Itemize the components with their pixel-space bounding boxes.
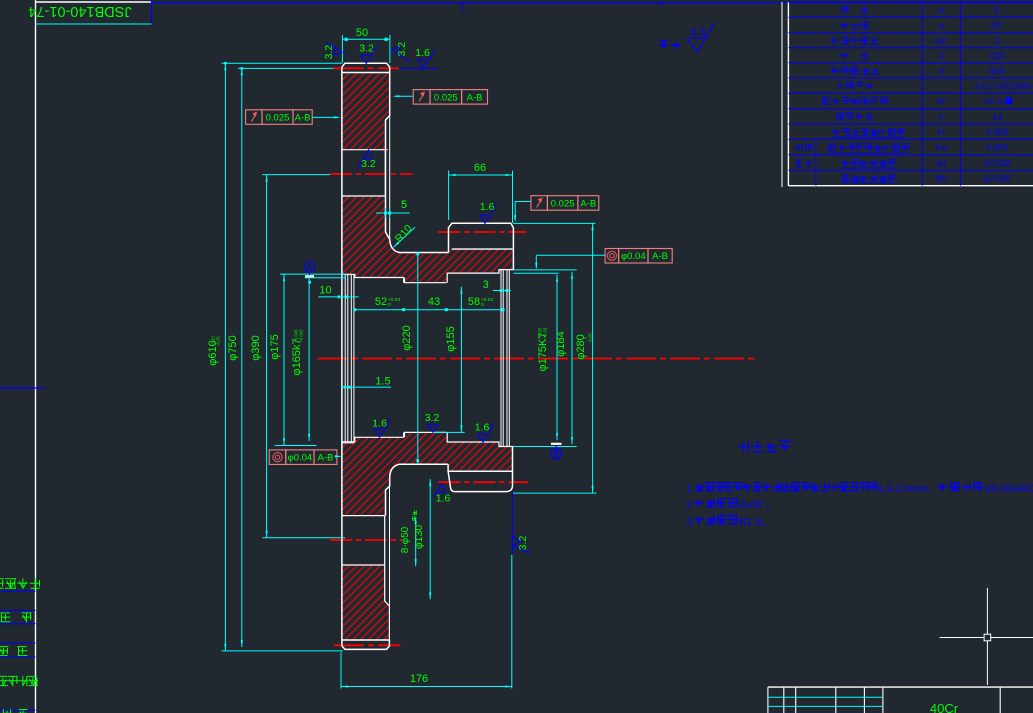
svg-text:48-55HRC: 48-55HRC: [985, 483, 1033, 495]
svg-text:3.2: 3.2: [517, 536, 529, 551]
svg-text:R1.5。: R1.5。: [739, 516, 772, 528]
svg-text:α: α: [939, 20, 944, 30]
svg-text:A-B: A-B: [652, 251, 668, 262]
svg-text:1.6: 1.6: [436, 493, 451, 505]
svg-text:1.5-2.0mm,: 1.5-2.0mm,: [878, 483, 931, 495]
svg-text:1.6: 1.6: [372, 418, 387, 430]
svg-text:-0.05: -0.05: [588, 333, 593, 343]
svg-text:0.086: 0.086: [986, 127, 1009, 137]
svg-text:237.02: 237.02: [984, 97, 1007, 106]
svg-text:A-B: A-B: [580, 198, 596, 209]
svg-text:φ0.04: φ0.04: [621, 251, 646, 262]
svg-text:0.050: 0.050: [986, 143, 1009, 153]
svg-text:1.6: 1.6: [415, 47, 430, 59]
svg-text:14: 14: [992, 112, 1002, 122]
svg-text:φ130: φ130: [413, 525, 425, 549]
svg-text:A-B: A-B: [318, 453, 334, 464]
svg-text:1.5: 1.5: [375, 376, 390, 388]
svg-text:fpb: fpb: [935, 173, 947, 183]
svg-text:3.2: 3.2: [425, 412, 440, 424]
svg-text:φ165k7: φ165k7: [291, 338, 303, 375]
svg-text:d: d: [939, 66, 944, 76]
svg-text:φ175: φ175: [269, 334, 281, 360]
svg-text:±0.030: ±0.030: [983, 174, 1010, 184]
svg-text:5: 5: [401, 199, 407, 211]
svg-text:A: A: [307, 263, 313, 272]
svg-text:k: k: [939, 112, 944, 122]
svg-text:5: 5: [994, 5, 999, 15]
svg-text:1.: 1.: [686, 483, 695, 495]
svg-text:40Cr: 40Cr: [930, 701, 959, 713]
svg-text:A-B: A-B: [467, 92, 483, 103]
svg-text:φ0.04: φ0.04: [288, 453, 313, 464]
svg-text:φ390: φ390: [250, 335, 262, 361]
svg-text:JSDB140-01-74: JSDB140-01-74: [28, 3, 131, 19]
svg-text:3.2: 3.2: [396, 42, 408, 57]
svg-text:±0.032: ±0.032: [983, 158, 1010, 168]
svg-text:66: 66: [474, 162, 486, 174]
svg-text:8-φ50: 8-φ50: [400, 526, 411, 553]
svg-text:10: 10: [319, 285, 331, 297]
svg-text:8 GJ GB10095-88: 8 GJ GB10095-88: [975, 81, 1033, 91]
svg-text:0: 0: [388, 302, 391, 308]
svg-text:2.: 2.: [686, 499, 695, 511]
svg-text:1.6: 1.6: [475, 422, 490, 434]
svg-text:W: W: [937, 96, 945, 106]
svg-text:φ220: φ220: [401, 325, 413, 351]
svg-text:m: m: [938, 5, 945, 15]
svg-text:3.: 3.: [686, 516, 695, 528]
svg-text:3.2: 3.2: [359, 43, 374, 55]
svg-text:20°: 20°: [990, 21, 1004, 31]
svg-text:0.025: 0.025: [434, 92, 458, 103]
svg-text:+0.03: +0.03: [543, 327, 548, 338]
svg-text:600: 600: [989, 66, 1004, 76]
svg-text:A-B: A-B: [295, 112, 311, 123]
svg-text:6.3: 6.3: [690, 27, 705, 39]
svg-text:176: 176: [410, 673, 428, 685]
svg-text:φ750: φ750: [227, 335, 239, 361]
svg-text:0.025: 0.025: [266, 112, 290, 123]
svg-text:58: 58: [468, 296, 480, 308]
svg-text:0.025: 0.025: [551, 198, 575, 209]
svg-text:fpt: fpt: [937, 158, 947, 168]
svg-text:3.2: 3.2: [323, 45, 335, 60]
svg-text:Z: Z: [939, 50, 944, 60]
svg-text:+0.003: +0.003: [299, 329, 304, 343]
svg-text:120: 120: [989, 51, 1004, 61]
svg-text:50: 50: [356, 27, 368, 39]
svg-text:Fr: Fr: [937, 127, 945, 137]
svg-text:-0.25: -0.25: [216, 336, 221, 346]
svg-text:Fw: Fw: [936, 142, 948, 152]
svg-text:52: 52: [375, 296, 387, 308]
svg-text:3: 3: [483, 279, 489, 291]
svg-text:2x45°。: 2x45°。: [739, 499, 776, 511]
svg-text:φ184: φ184: [555, 331, 567, 357]
svg-text:φ155: φ155: [445, 326, 457, 352]
svg-text:ha*: ha*: [935, 35, 948, 45]
svg-text:3.2: 3.2: [361, 158, 376, 170]
svg-text:43: 43: [428, 296, 440, 308]
svg-text:1: 1: [994, 36, 999, 46]
svg-text:1.6: 1.6: [480, 201, 495, 213]
svg-text:0: 0: [481, 302, 484, 308]
